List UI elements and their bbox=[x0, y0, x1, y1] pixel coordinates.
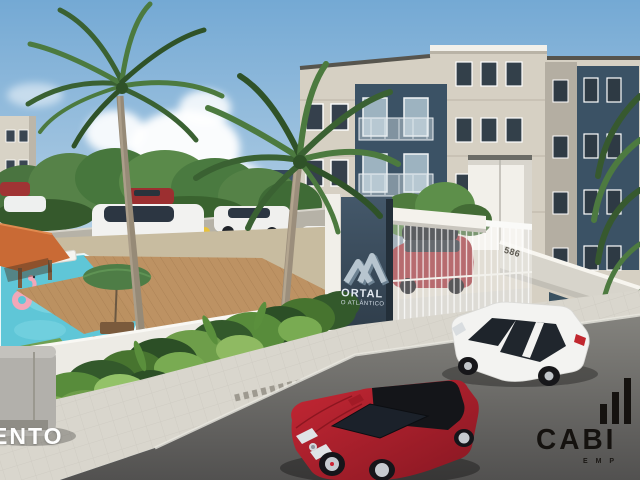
watermark-left: ENTO bbox=[0, 423, 63, 450]
brand-text: CABI bbox=[536, 424, 616, 457]
car-white-hatchback bbox=[442, 302, 598, 387]
render-canvas: ORTAL O ATLÂNTICO 586 ENTO CABI E M P bbox=[0, 0, 640, 480]
scene-render bbox=[0, 0, 640, 480]
bars-icon bbox=[600, 378, 640, 424]
brand-subtext: E M P bbox=[583, 458, 617, 465]
entrance-sign-text: ORTAL O ATLÂNTICO bbox=[341, 287, 394, 309]
